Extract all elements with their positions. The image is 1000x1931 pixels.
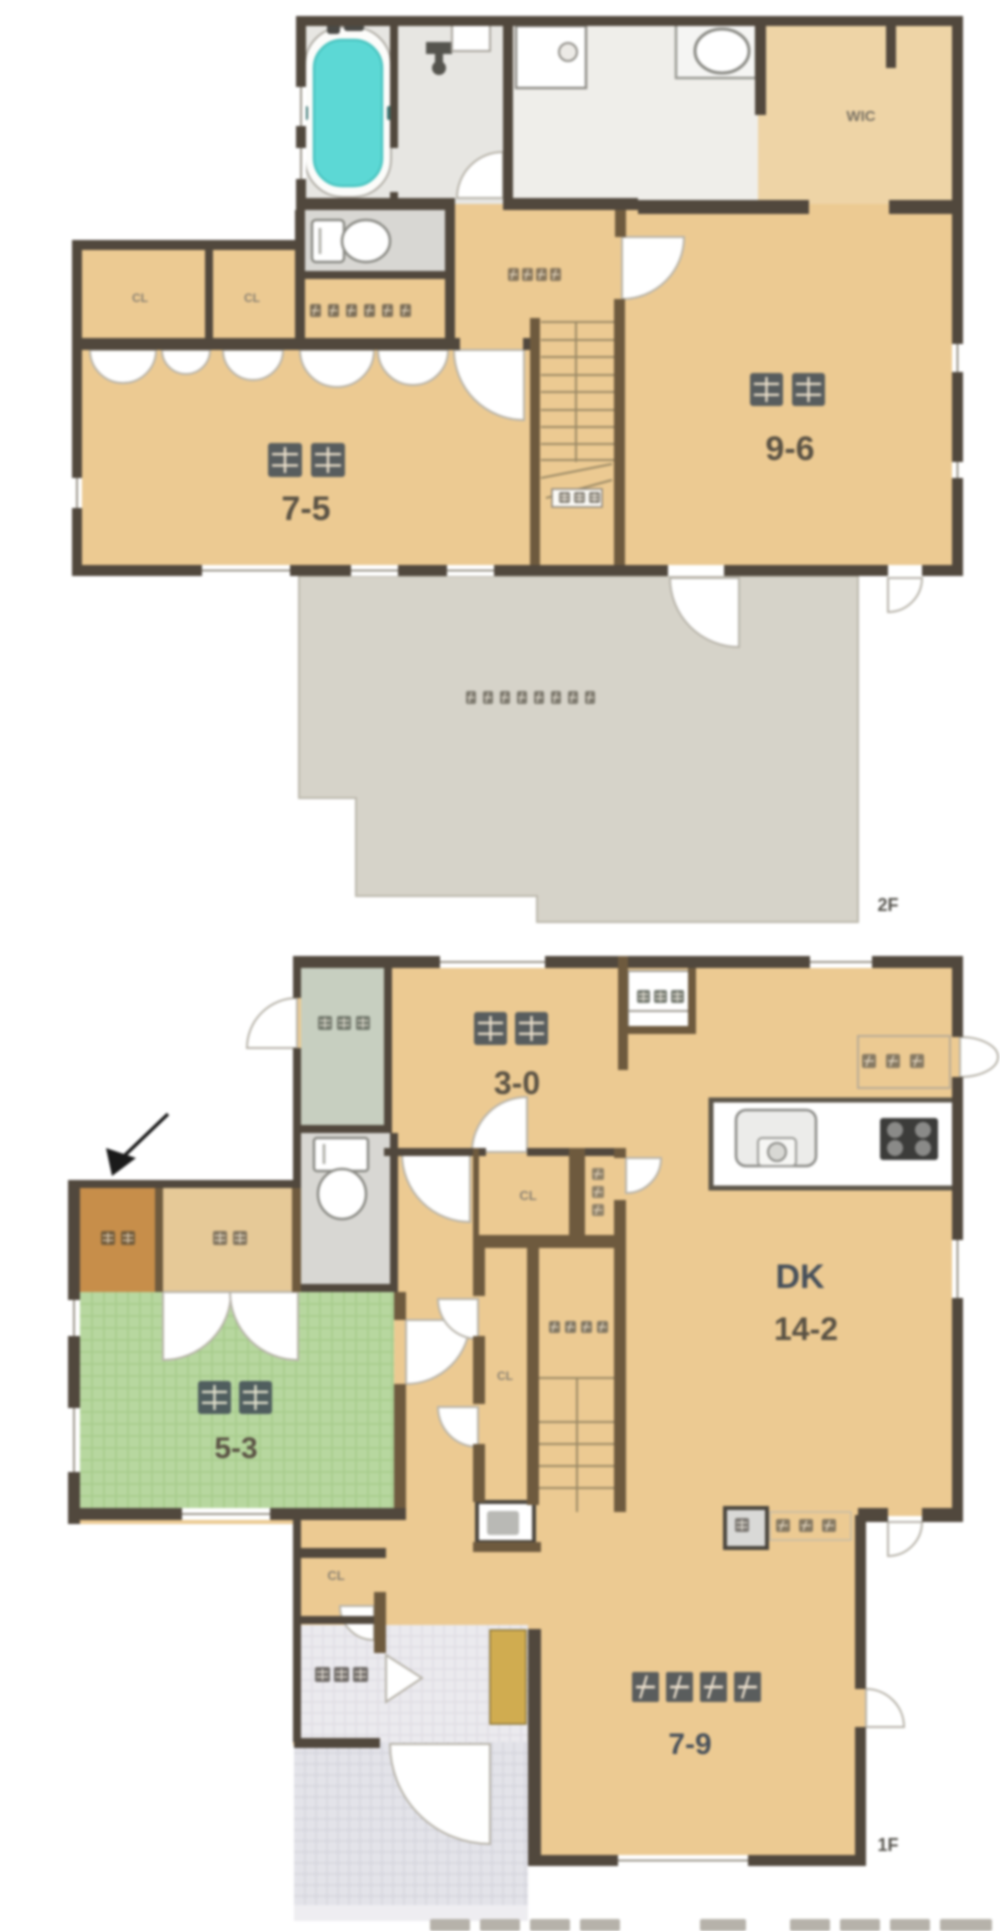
svg-text:3-0: 3-0	[494, 1065, 540, 1101]
svg-text:5-3: 5-3	[214, 1432, 257, 1465]
svg-text:14-2: 14-2	[774, 1311, 838, 1347]
svg-text:WIC: WIC	[846, 108, 875, 125]
svg-text:1F: 1F	[877, 1835, 898, 1855]
svg-text:7-5: 7-5	[281, 490, 330, 528]
svg-text:7-9: 7-9	[668, 1728, 711, 1761]
svg-text:CL: CL	[519, 1188, 536, 1203]
svg-text:CL: CL	[497, 1369, 513, 1383]
svg-text:CL: CL	[244, 291, 260, 305]
svg-text:9-6: 9-6	[765, 430, 814, 468]
svg-text:DK: DK	[775, 1258, 825, 1296]
svg-text:2F: 2F	[877, 895, 898, 915]
svg-text:CL: CL	[327, 1568, 344, 1583]
svg-text:CL: CL	[132, 291, 148, 305]
